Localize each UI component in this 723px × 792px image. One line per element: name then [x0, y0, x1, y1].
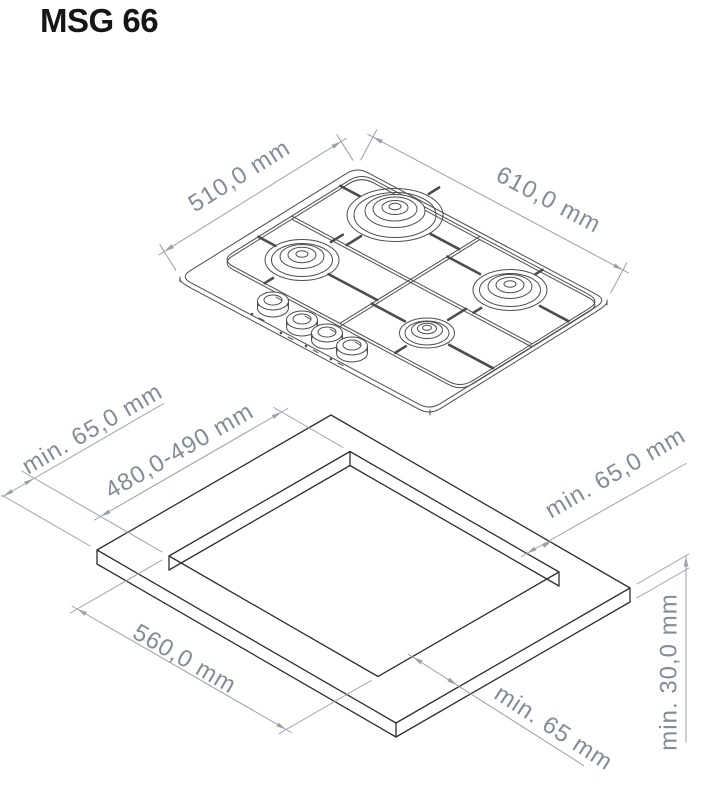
- dimension-label-margin-front: min. 65 mm: [490, 680, 618, 776]
- dimension-margin-right: min. 65,0 mm: [522, 422, 691, 557]
- dimension-label-worktop-thickness: min. 30,0 mm: [655, 593, 682, 750]
- dimension-label-cutout-width: 560,0 mm: [128, 619, 241, 700]
- hob-isometric-drawing: 510,0 mm 610,0 mm: [159, 130, 628, 415]
- cutout-isometric-drawing: min. 65,0 mm 480,0-490 mm min. 65,0 mm: [2, 378, 691, 776]
- dimension-label-hob-width: 610,0 mm: [492, 161, 606, 239]
- technical-drawing-svg: 510,0 mm 610,0 mm: [0, 0, 723, 792]
- datasheet-page: MSG 66: [0, 0, 723, 792]
- dimension-label-margin-right: min. 65,0 mm: [541, 422, 691, 524]
- dimension-worktop-thickness: min. 30,0 mm: [655, 556, 688, 751]
